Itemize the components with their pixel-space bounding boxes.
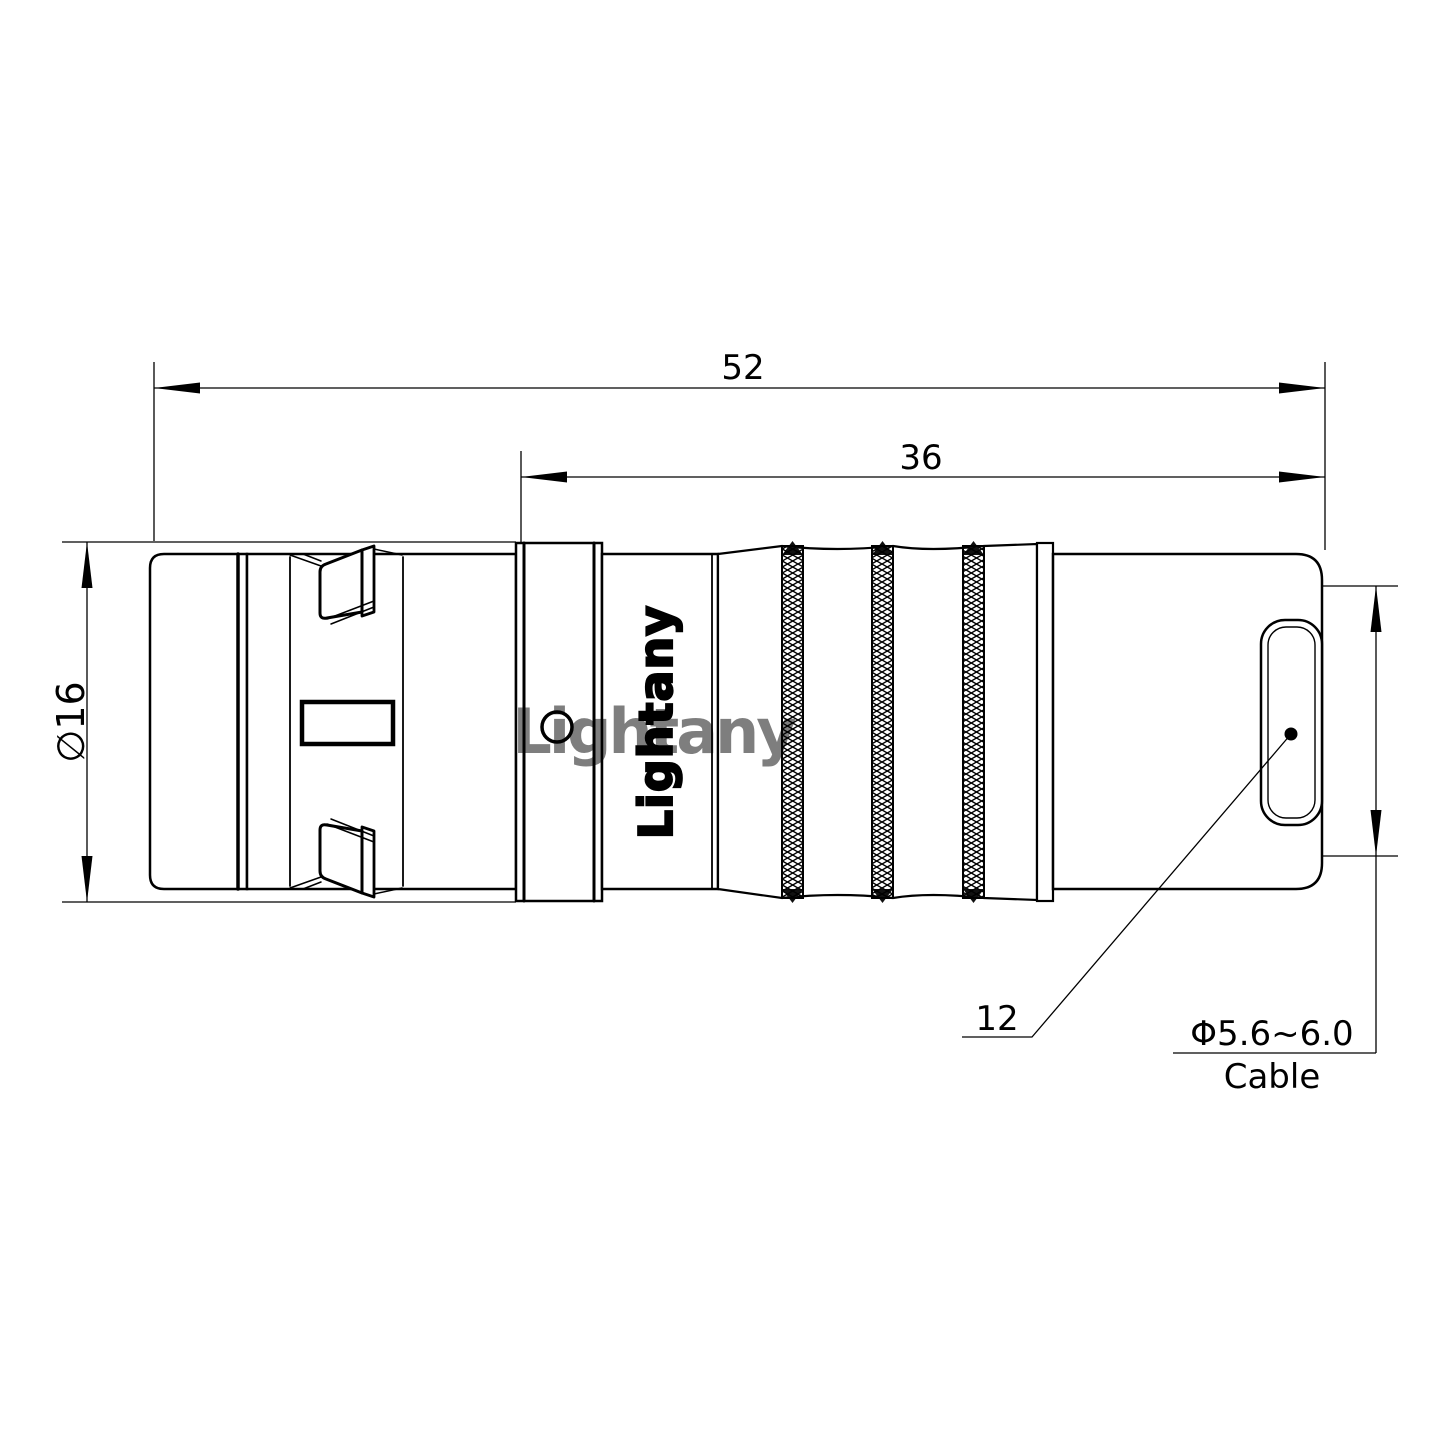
latch-slot-window bbox=[302, 702, 393, 744]
dimension-mid-length: 36 bbox=[521, 438, 1325, 542]
logo-text-vertical: Lightany bbox=[629, 605, 683, 840]
dim-label-52: 52 bbox=[721, 348, 764, 388]
cable-bushing-outer bbox=[1261, 620, 1322, 825]
arrow-52-left bbox=[154, 383, 200, 394]
retaining-ring bbox=[1037, 543, 1053, 901]
dim-label-d16: ∅16 bbox=[49, 681, 93, 762]
arrow-52-right bbox=[1279, 383, 1325, 394]
arrow-cable-top bbox=[1371, 586, 1382, 632]
technical-drawing-canvas: Lightany Lightany 52 36 ∅16 bbox=[0, 0, 1440, 1440]
dim-label-36: 36 bbox=[899, 438, 942, 478]
arrow-d16-bottom bbox=[82, 856, 93, 902]
front-cap bbox=[150, 554, 247, 889]
arrow-36-left bbox=[521, 472, 567, 483]
knurl-band-2 bbox=[872, 541, 893, 903]
leader-label-12: 12 bbox=[975, 999, 1018, 1039]
knurl-band-2-texture bbox=[872, 546, 893, 898]
knurl-band-3 bbox=[963, 541, 984, 903]
arrow-cable-bottom bbox=[1371, 810, 1382, 856]
cable-diameter-label: Φ5.6~6.0 bbox=[1190, 1014, 1353, 1054]
cable-word-label: Cable bbox=[1224, 1057, 1321, 1097]
dimension-overall-length: 52 bbox=[154, 348, 1325, 550]
knurl-band-3-texture bbox=[963, 546, 984, 898]
arrow-d16-top bbox=[82, 542, 93, 588]
connector-engineering-drawing: Lightany Lightany 52 36 ∅16 bbox=[0, 0, 1440, 1440]
arrow-36-right bbox=[1279, 472, 1325, 483]
